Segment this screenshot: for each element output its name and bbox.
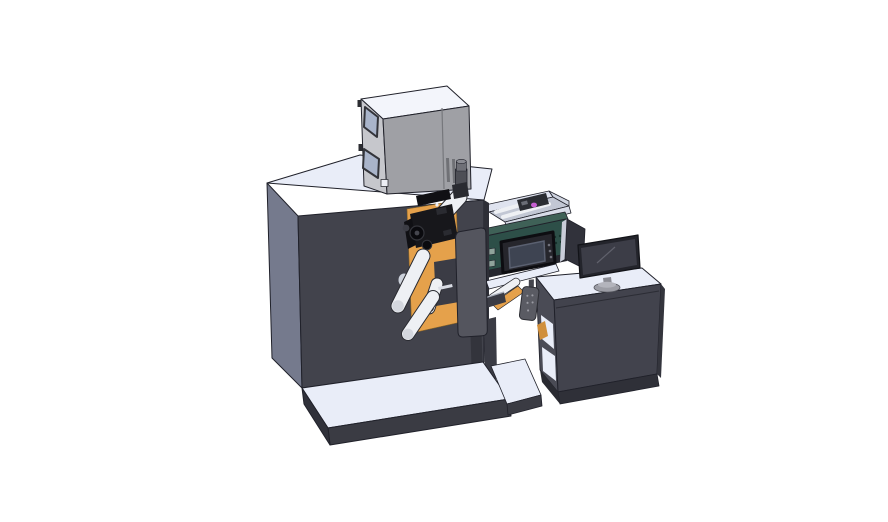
membrane-key	[489, 260, 495, 267]
tray-magenta-part	[531, 203, 537, 208]
printer-box	[358, 86, 472, 194]
hinge	[359, 144, 363, 151]
head-sensor	[435, 203, 438, 206]
dot	[559, 235, 561, 237]
button	[548, 244, 551, 247]
cad-viewport	[0, 0, 888, 522]
button	[549, 250, 552, 253]
membrane-key	[489, 248, 495, 255]
corner-plate	[381, 180, 388, 187]
head-bracket	[452, 182, 469, 199]
machine-render	[0, 0, 888, 522]
front-guard-plate	[456, 228, 488, 337]
roller-cap	[403, 329, 414, 340]
applicator-body	[519, 286, 539, 321]
head-knob	[403, 225, 410, 232]
gear-hub	[415, 231, 420, 236]
button	[550, 256, 553, 259]
monitor-base-top	[598, 282, 616, 288]
roller-cap	[392, 300, 404, 312]
hinge	[358, 100, 362, 107]
cylinder-top	[456, 159, 466, 163]
gear-small	[422, 240, 432, 250]
